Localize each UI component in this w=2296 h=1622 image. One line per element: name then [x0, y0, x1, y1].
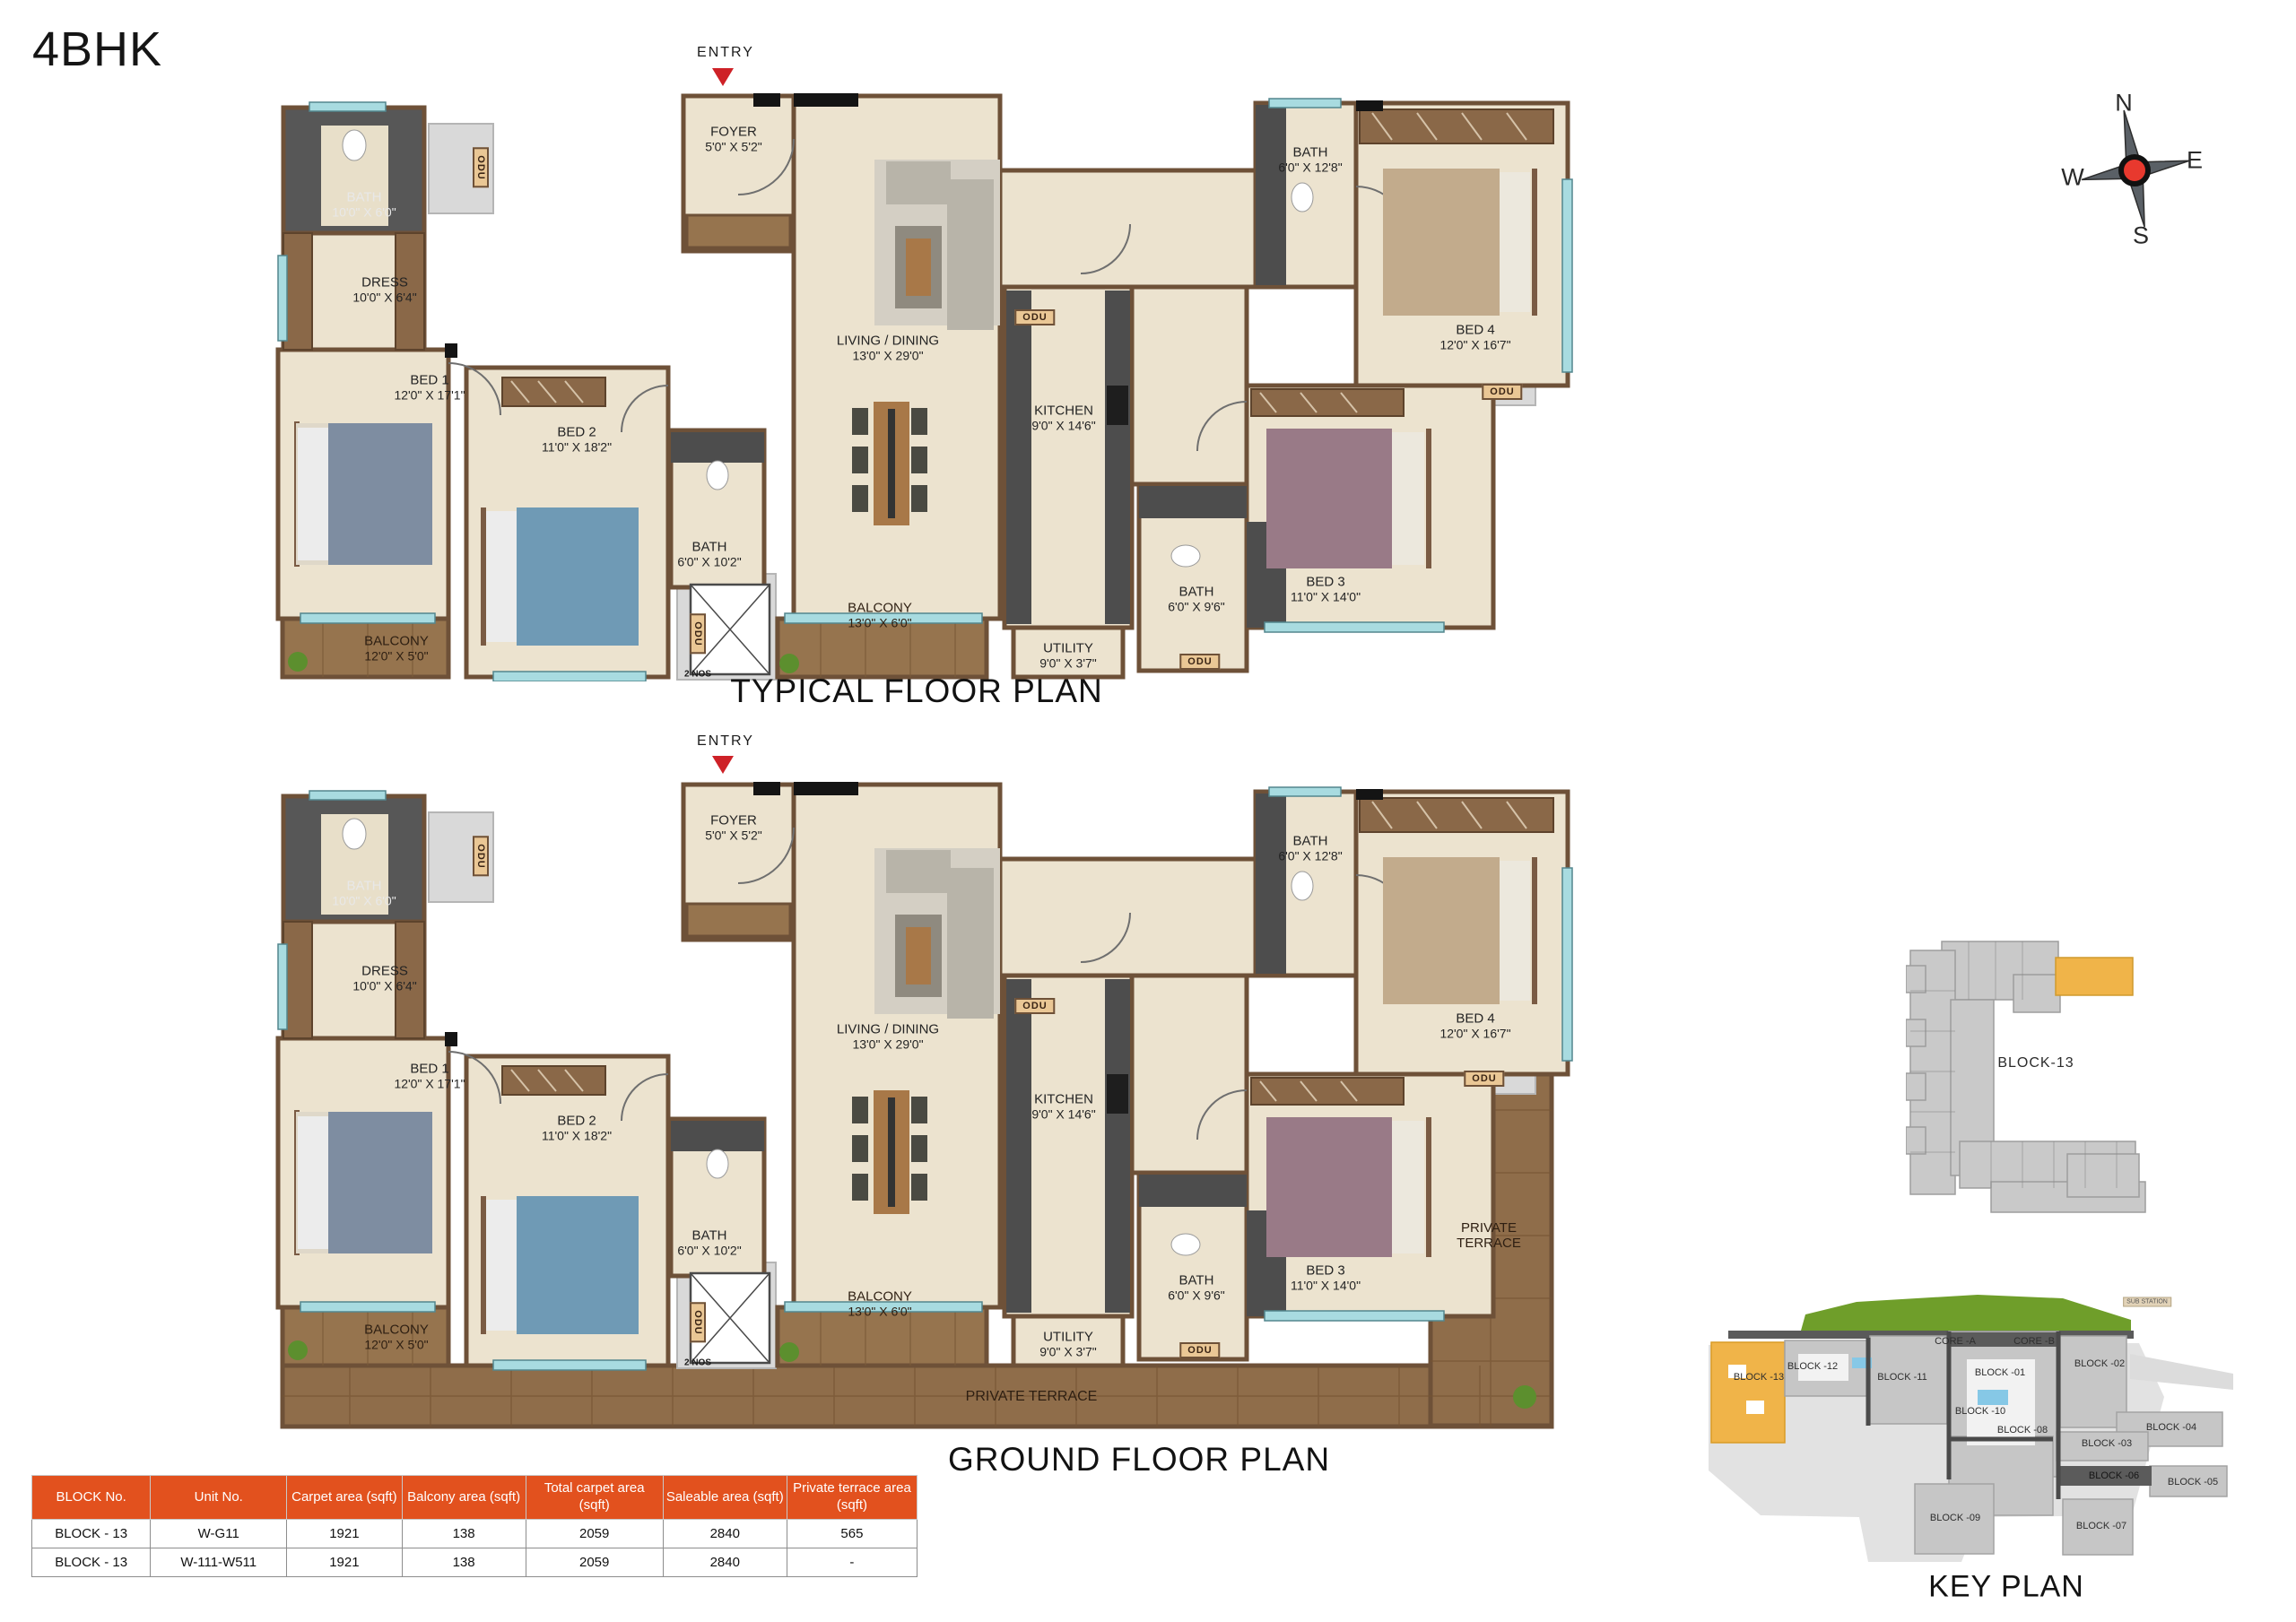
cell-total-carpet: 2059 — [526, 1520, 663, 1548]
cell-terrace-area: 565 — [787, 1520, 917, 1548]
odu-unit: ODU — [473, 147, 489, 187]
page-title: 4BHK — [32, 22, 162, 77]
odu-unit: ODU — [1014, 309, 1055, 325]
room-label-kitchen: KITCHEN 9'0" X 14'6" — [1031, 403, 1095, 432]
odu-unit: ODU — [1014, 998, 1055, 1014]
ground-plan-caption: GROUND FLOOR PLAN — [948, 1441, 1330, 1479]
room-label-bath1: BATH 10'0" X 6'0" — [332, 878, 396, 907]
keyplan-label-block04: BLOCK -04 — [2146, 1422, 2196, 1433]
room-label-bed3: BED 3 11'0" X 14'0" — [1291, 1262, 1361, 1292]
entry-arrow-typical — [712, 68, 734, 86]
block13-mini-plan: BLOCK-13 — [1906, 928, 2193, 1215]
cell-block-no: BLOCK - 13 — [32, 1548, 151, 1577]
room-label-dress: DRESS 10'0" X 6'4" — [352, 274, 416, 304]
room-label-living: LIVING / DINING 13'0" X 29'0" — [837, 333, 939, 362]
room-label-bed1: BED 1 12'0" X 17'1" — [394, 372, 465, 402]
odu-unit: ODU — [690, 613, 706, 654]
entry-label-ground: ENTRY — [697, 733, 754, 750]
room-label-balcony1: BALCONY 12'0" X 5'0" — [364, 633, 429, 663]
col-header-block-no: BLOCK No. — [32, 1476, 151, 1520]
odu-unit: ODU — [1179, 654, 1220, 670]
room-label-bath4: BATH 6'0" X 9'6" — [1168, 1272, 1225, 1302]
room-label-bath3: BATH 6'0" X 12'8" — [1278, 144, 1342, 174]
col-header-balcony-area: Balcony area (sqft) — [402, 1476, 526, 1520]
room-label-bed4: BED 4 12'0" X 16'7" — [1439, 322, 1510, 351]
room-label-private-terrace-right: PRIVATE TERRACE — [1457, 1220, 1521, 1252]
cell-balcony-area: 138 — [402, 1548, 526, 1577]
table-header-row: BLOCK No. Unit No. Carpet area (sqft) Ba… — [32, 1476, 918, 1520]
room-label-bed1: BED 1 12'0" X 17'1" — [394, 1061, 465, 1090]
room-label-foyer: FOYER 5'0" X 5'2" — [705, 124, 762, 153]
compass-rose: N E S W — [2067, 63, 2211, 256]
keyplan-label-block05: BLOCK -05 — [2168, 1477, 2218, 1488]
key-plan-shapes — [1709, 1291, 2265, 1614]
room-label-balcony2: BALCONY 13'0" X 6'0" — [848, 1288, 912, 1318]
col-header-total-carpet: Total carpet area (sqft) — [526, 1476, 663, 1520]
keyplan-label-core-b: CORE -B — [2013, 1336, 2055, 1347]
entry-arrow-ground — [712, 756, 734, 774]
floorplan-brochure-page: 4BHK ENTRY BATH 10'0" X 6'0" DRESS 10'0"… — [0, 0, 2296, 1622]
highlighted-unit — [2056, 958, 2133, 995]
cell-saleable-area: 2840 — [663, 1520, 787, 1548]
keyplan-label-block01: BLOCK -01 — [1975, 1367, 2025, 1378]
block13-mini-plan-label: BLOCK-13 — [1997, 1055, 2074, 1071]
keyplan-label-block12: BLOCK -12 — [1787, 1361, 1838, 1372]
cell-terrace-area: - — [787, 1548, 917, 1577]
room-label-bed2: BED 2 11'0" X 18'2" — [542, 424, 612, 454]
keyplan-label-block06: BLOCK -06 — [2089, 1470, 2139, 1481]
keyplan-label-block10: BLOCK -10 — [1955, 1406, 2005, 1417]
compass-w: W — [2061, 164, 2083, 192]
area-statement-table: BLOCK No. Unit No. Carpet area (sqft) Ba… — [31, 1475, 918, 1577]
room-label-bath3: BATH 6'0" X 12'8" — [1278, 833, 1342, 863]
room-label-private-terrace-bottom: PRIVATE TERRACE — [966, 1389, 1098, 1405]
cell-saleable-area: 2840 — [663, 1548, 787, 1577]
keyplan-pool — [1978, 1390, 2008, 1405]
odu-unit: ODU — [690, 1302, 706, 1342]
keyplan-label-block02: BLOCK -02 — [2074, 1358, 2125, 1369]
terrace-plant — [1513, 1385, 1536, 1409]
keyplan-label-block13: BLOCK -13 — [1734, 1372, 1784, 1383]
room-label-bed3: BED 3 11'0" X 14'0" — [1291, 574, 1361, 603]
typical-plan-caption: TYPICAL FLOOR PLAN — [730, 672, 1103, 710]
col-header-carpet-area: Carpet area (sqft) — [287, 1476, 402, 1520]
green-landscape-strip — [1801, 1295, 2131, 1331]
cell-unit-no: W-111-W511 — [151, 1548, 287, 1577]
room-label-bed2: BED 2 11'0" X 18'2" — [542, 1113, 612, 1142]
ground-floor-plan-drawing — [269, 778, 1578, 1433]
room-label-bath4: BATH 6'0" X 9'6" — [1168, 584, 1225, 613]
cell-unit-no: W-G11 — [151, 1520, 287, 1548]
compass-e: E — [2187, 147, 2203, 175]
keyplan-block13-highlight — [1711, 1342, 1785, 1443]
room-label-bath2: BATH 6'0" X 10'2" — [677, 539, 741, 568]
room-label-utility: UTILITY 9'0" X 3'7" — [1039, 640, 1097, 670]
odu-unit: ODU — [1179, 1342, 1220, 1358]
cell-carpet-area: 1921 — [287, 1520, 402, 1548]
room-label-dress: DRESS 10'0" X 6'4" — [352, 963, 416, 993]
keyplan-label-block07: BLOCK -07 — [2076, 1521, 2126, 1531]
keyplan-label-core-a: CORE -A — [1935, 1336, 1976, 1347]
room-label-balcony2: BALCONY 13'0" X 6'0" — [848, 600, 912, 629]
room-label-kitchen: KITCHEN 9'0" X 14'6" — [1031, 1091, 1095, 1121]
keyplan-substation-label: SUB STATION — [2123, 1297, 2171, 1307]
compass-s: S — [2133, 222, 2149, 250]
odu-count-label: 2 NOS — [684, 670, 711, 680]
keyplan-label-block11: BLOCK -11 — [1877, 1372, 1926, 1383]
keyplan-label-block03: BLOCK -03 — [2082, 1438, 2132, 1449]
keyplan-label-block09: BLOCK -09 — [1930, 1513, 1980, 1523]
odu-unit: ODU — [473, 836, 489, 876]
key-plan: SUB STATION CORE -A CORE -B BLOCK -01 BL… — [1709, 1291, 2265, 1614]
odu-unit: ODU — [1482, 384, 1522, 400]
cell-block-no: BLOCK - 13 — [32, 1520, 151, 1548]
cell-balcony-area: 138 — [402, 1520, 526, 1548]
room-label-bed4: BED 4 12'0" X 16'7" — [1439, 1010, 1510, 1040]
typical-floor-plan-drawing — [269, 90, 1578, 681]
room-label-balcony1: BALCONY 12'0" X 5'0" — [364, 1322, 429, 1351]
col-header-unit-no: Unit No. — [151, 1476, 287, 1520]
keyplan-label-block08: BLOCK -08 — [1997, 1425, 2048, 1436]
odu-count-label: 2 NOS — [684, 1358, 711, 1368]
col-header-terrace-area: Private terrace area (sqft) — [787, 1476, 917, 1520]
room-label-living: LIVING / DINING 13'0" X 29'0" — [837, 1021, 939, 1051]
block13-mini-plan-shapes — [1906, 928, 2193, 1215]
compass-n: N — [2115, 90, 2133, 117]
entry-label-typical: ENTRY — [697, 45, 754, 61]
room-label-bath1: BATH 10'0" X 6'0" — [332, 189, 396, 219]
room-label-foyer: FOYER 5'0" X 5'2" — [705, 812, 762, 842]
room-label-utility: UTILITY 9'0" X 3'7" — [1039, 1329, 1097, 1358]
col-header-saleable-area: Saleable area (sqft) — [663, 1476, 787, 1520]
table-row: BLOCK - 13 W-111-W511 1921 138 2059 2840… — [32, 1548, 918, 1577]
keyplan-caption: KEY PLAN — [1928, 1570, 2084, 1605]
table-row: BLOCK - 13 W-G11 1921 138 2059 2840 565 — [32, 1520, 918, 1548]
room-label-bath2: BATH 6'0" X 10'2" — [677, 1227, 741, 1257]
odu-unit: ODU — [1464, 1071, 1504, 1087]
cell-total-carpet: 2059 — [526, 1548, 663, 1577]
cell-carpet-area: 1921 — [287, 1548, 402, 1577]
